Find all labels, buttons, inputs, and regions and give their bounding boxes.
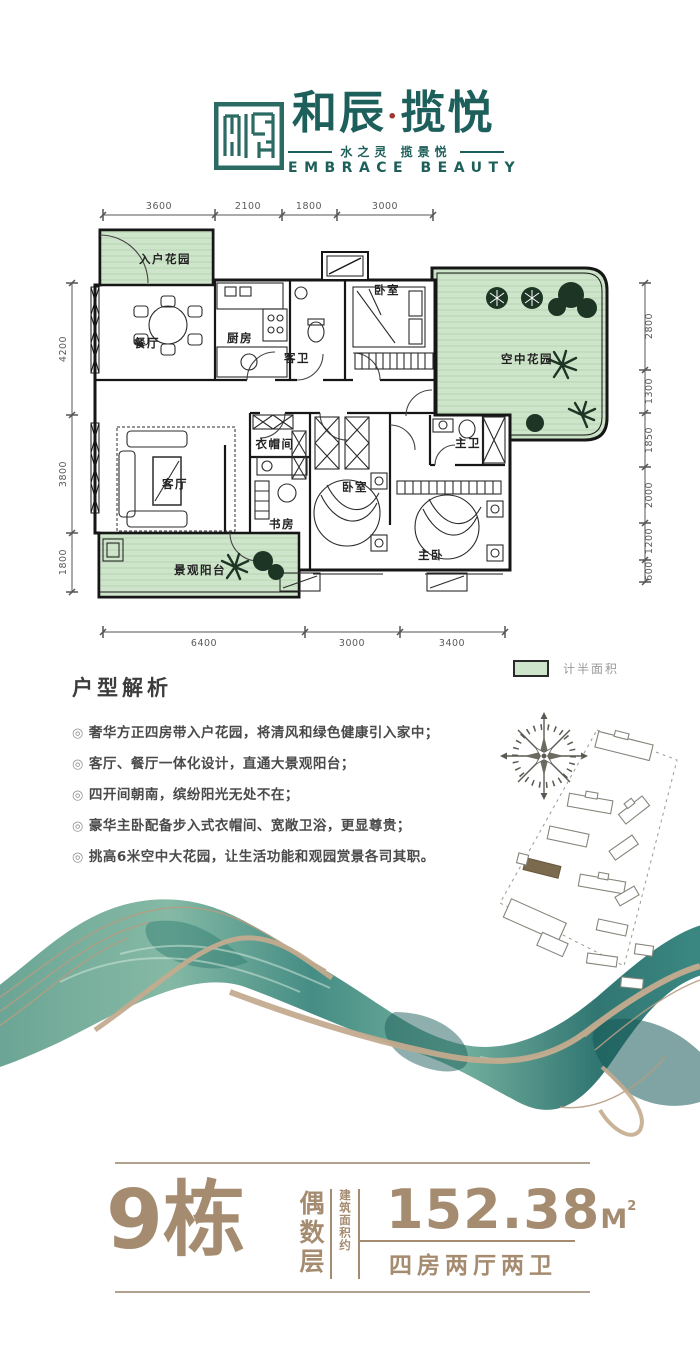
siteplan — [472, 698, 690, 1006]
dim-top-3: 1800 — [296, 201, 322, 212]
bullet-icon: ◎ — [72, 819, 84, 834]
label-cloakroom: 衣帽间 — [256, 437, 295, 451]
layout-text: 四房两厅两卫 — [389, 1246, 557, 1280]
dim-right-2: 1300 — [644, 378, 655, 404]
brand-tagline: 水之灵 揽景悦 — [288, 143, 504, 160]
dim-right-3: 1850 — [644, 427, 655, 453]
analysis-section: 户型解析 ◎奢华方正四房带入户花园，将清风和绿色健康引入家中； ◎客厅、餐厅一体… — [72, 672, 492, 873]
label-living: 客厅 — [161, 477, 188, 491]
label-study: 书房 — [269, 517, 295, 531]
summary-rule-bottom — [115, 1291, 590, 1293]
dim-top-4: 3000 — [372, 201, 398, 212]
analysis-text: 豪华主卧配备步入式衣帽间、宽敞卫浴，更显尊贵； — [89, 818, 411, 834]
floorplan: 入户花园 餐厅 厨房 客卫 卧室 空中花园 客厅 衣帽间 书房 卧室 主卫 主卧… — [35, 195, 665, 650]
summary-divider-1 — [330, 1189, 332, 1279]
brand-name-left: 和辰 — [292, 86, 386, 139]
brand-seal-icon — [214, 102, 284, 170]
area-label: 建筑面积约 — [337, 1189, 353, 1281]
plan-legend: 计半面积 — [513, 660, 619, 677]
analysis-text: 四开间朝南，缤纷阳光无处不在； — [89, 787, 299, 803]
label-master-bedroom: 主卧 — [418, 548, 444, 562]
bullet-icon: ◎ — [72, 757, 84, 772]
brand-tagline-en: EMBRACE BEAUTY — [288, 160, 504, 176]
label-dining: 餐厅 — [133, 336, 160, 350]
bullet-icon: ◎ — [72, 788, 84, 803]
floor-type: 偶数层 — [292, 1190, 328, 1282]
poster-page: 和辰·揽悦 水之灵 揽景悦 EMBRACE BEAUTY — [0, 0, 700, 1346]
analysis-item: ◎四开间朝南，缤纷阳光无处不在； — [72, 780, 492, 811]
analysis-text: 客厅、餐厅一体化设计，直通大景观阳台； — [89, 756, 355, 772]
analysis-item: ◎豪华主卧配备步入式衣帽间、宽敞卫浴，更显尊贵； — [72, 811, 492, 842]
dim-top-1: 3600 — [146, 201, 172, 212]
label-guest-bath: 客卫 — [283, 351, 310, 365]
compass-icon — [500, 712, 588, 800]
brand-name-right: 揽悦 — [400, 86, 494, 139]
label-balcony: 景观阳台 — [173, 563, 226, 577]
analysis-item: ◎客厅、餐厅一体化设计，直通大景观阳台； — [72, 749, 492, 780]
label-bedroom-top: 卧室 — [374, 283, 400, 297]
area-value: 152.38M2 — [386, 1178, 636, 1241]
legend-label: 计半面积 — [563, 660, 619, 677]
dim-bottom-1: 6400 — [191, 638, 217, 649]
label-bedroom-mid: 卧室 — [342, 480, 368, 494]
label-kitchen: 厨房 — [227, 331, 253, 345]
legend-swatch — [513, 660, 549, 677]
dim-bottom-2: 3000 — [339, 638, 365, 649]
dim-right-4: 2000 — [644, 482, 655, 508]
tagline-rule-left — [288, 151, 332, 153]
label-entry-garden: 入户花园 — [139, 252, 191, 266]
area-unit: M — [600, 1204, 627, 1235]
area-sup: 2 — [627, 1199, 636, 1214]
site-boundary — [500, 730, 677, 966]
tagline-rule-right — [460, 151, 504, 153]
summary-divider-2 — [358, 1189, 360, 1279]
analysis-item: ◎奢华方正四房带入户花园，将清风和绿色健康引入家中； — [72, 718, 492, 749]
dim-left-1: 4200 — [58, 336, 69, 362]
tagline-text: 水之灵 揽景悦 — [340, 143, 451, 160]
dim-right-6: 600 — [644, 561, 655, 581]
dim-top-2: 2100 — [235, 201, 261, 212]
summary-mid-rule — [360, 1240, 575, 1242]
analysis-list: ◎奢华方正四房带入户花园，将清风和绿色健康引入家中； ◎客厅、餐厅一体化设计，直… — [72, 718, 492, 873]
site-building-9-highlight — [515, 853, 561, 878]
dim-right-5: 1200 — [644, 528, 655, 554]
brand-title: 和辰·揽悦 — [292, 88, 522, 138]
analysis-text: 奢华方正四房带入户花园，将清风和绿色健康引入家中； — [89, 725, 439, 741]
site-buildings — [498, 727, 654, 990]
bullet-icon: ◎ — [72, 726, 84, 741]
dim-left-2: 3800 — [58, 461, 69, 487]
summary-rule-top — [115, 1162, 590, 1164]
building-number: 9栋 — [106, 1180, 245, 1262]
dim-left-3: 1800 — [58, 549, 69, 575]
brand-header: 和辰·揽悦 水之灵 揽景悦 EMBRACE BEAUTY — [0, 40, 700, 160]
brand-dot: · — [386, 99, 400, 134]
dim-right-1: 2800 — [644, 313, 655, 339]
label-sky-garden: 空中花园 — [501, 352, 553, 366]
analysis-title: 户型解析 — [72, 672, 492, 702]
label-master-bath: 主卫 — [455, 436, 481, 450]
dim-bottom-3: 3400 — [439, 638, 465, 649]
area-number: 152.38 — [386, 1178, 600, 1241]
